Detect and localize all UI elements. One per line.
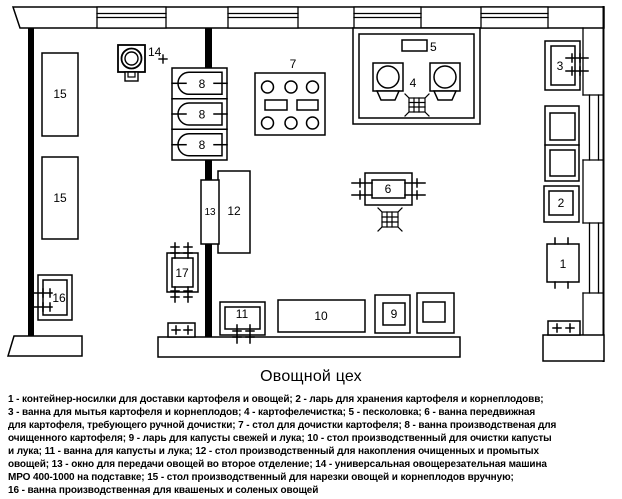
- equip-13-pass-window: 13: [201, 180, 219, 244]
- label-2: 2: [558, 196, 565, 210]
- label-10: 10: [314, 309, 328, 323]
- window-right-1: [590, 95, 599, 160]
- wall-bottom-left: [8, 336, 82, 356]
- sink-right: [548, 321, 580, 335]
- label-8c: 8: [199, 138, 206, 152]
- label-14: 14: [148, 45, 162, 59]
- sink-left: [168, 323, 195, 337]
- equip-16-bath: 16: [30, 275, 72, 320]
- bin-unlabeled: [417, 293, 454, 333]
- label-7: 7: [290, 57, 297, 71]
- floor-plan: 15 15 16 14 17: [0, 0, 622, 362]
- equip-7-table: 7: [255, 57, 325, 135]
- equip-10-table: 10: [278, 300, 365, 332]
- equip-2-bin: 2: [544, 186, 579, 222]
- window-top-2: [228, 7, 298, 28]
- equip-15-table-bottom: 15: [42, 157, 78, 239]
- equip-6-mobile-bath: 6: [352, 173, 425, 205]
- window-top-1: [97, 7, 166, 28]
- legend-text: 1 - контейнер-носилки для доставки карто…: [0, 393, 622, 497]
- wall-right: [583, 7, 604, 361]
- label-13: 13: [204, 207, 216, 218]
- label-1: 1: [560, 257, 567, 271]
- window-top-3: [354, 7, 421, 28]
- wall-bottom-right: [543, 335, 604, 361]
- equip-3-washing-bath: 3: [545, 41, 588, 90]
- label-4: 4: [410, 76, 417, 90]
- label-9: 9: [391, 307, 398, 321]
- label-15b: 15: [53, 191, 67, 205]
- wall-bottom-center: [158, 337, 460, 357]
- equip-12-table: 12: [218, 171, 250, 253]
- equip-1-container: 1: [547, 238, 579, 288]
- equip-14-vegetable-cutter: 14: [118, 45, 162, 81]
- window-top-4: [481, 7, 548, 28]
- equip-9-bin: 9: [375, 295, 410, 333]
- window-right-2: [590, 223, 599, 293]
- label-12: 12: [227, 204, 241, 218]
- equip-17-bath: 17: [167, 243, 198, 302]
- label-17: 17: [175, 266, 189, 280]
- label-8a: 8: [199, 77, 206, 91]
- label-8b: 8: [199, 108, 206, 122]
- label-6: 6: [385, 182, 392, 196]
- wall-left: [28, 28, 34, 336]
- storage-bins: [545, 106, 579, 181]
- equip-8-baths: 8 8 8: [172, 68, 227, 160]
- equip-15-table-top: 15: [42, 53, 78, 136]
- drain-grate-2: [378, 208, 402, 231]
- label-5: 5: [430, 40, 437, 54]
- label-16: 16: [52, 291, 66, 305]
- label-3: 3: [557, 59, 564, 73]
- plan-title: Овощной цех: [0, 368, 622, 386]
- label-15a: 15: [53, 87, 67, 101]
- label-11: 11: [236, 307, 249, 321]
